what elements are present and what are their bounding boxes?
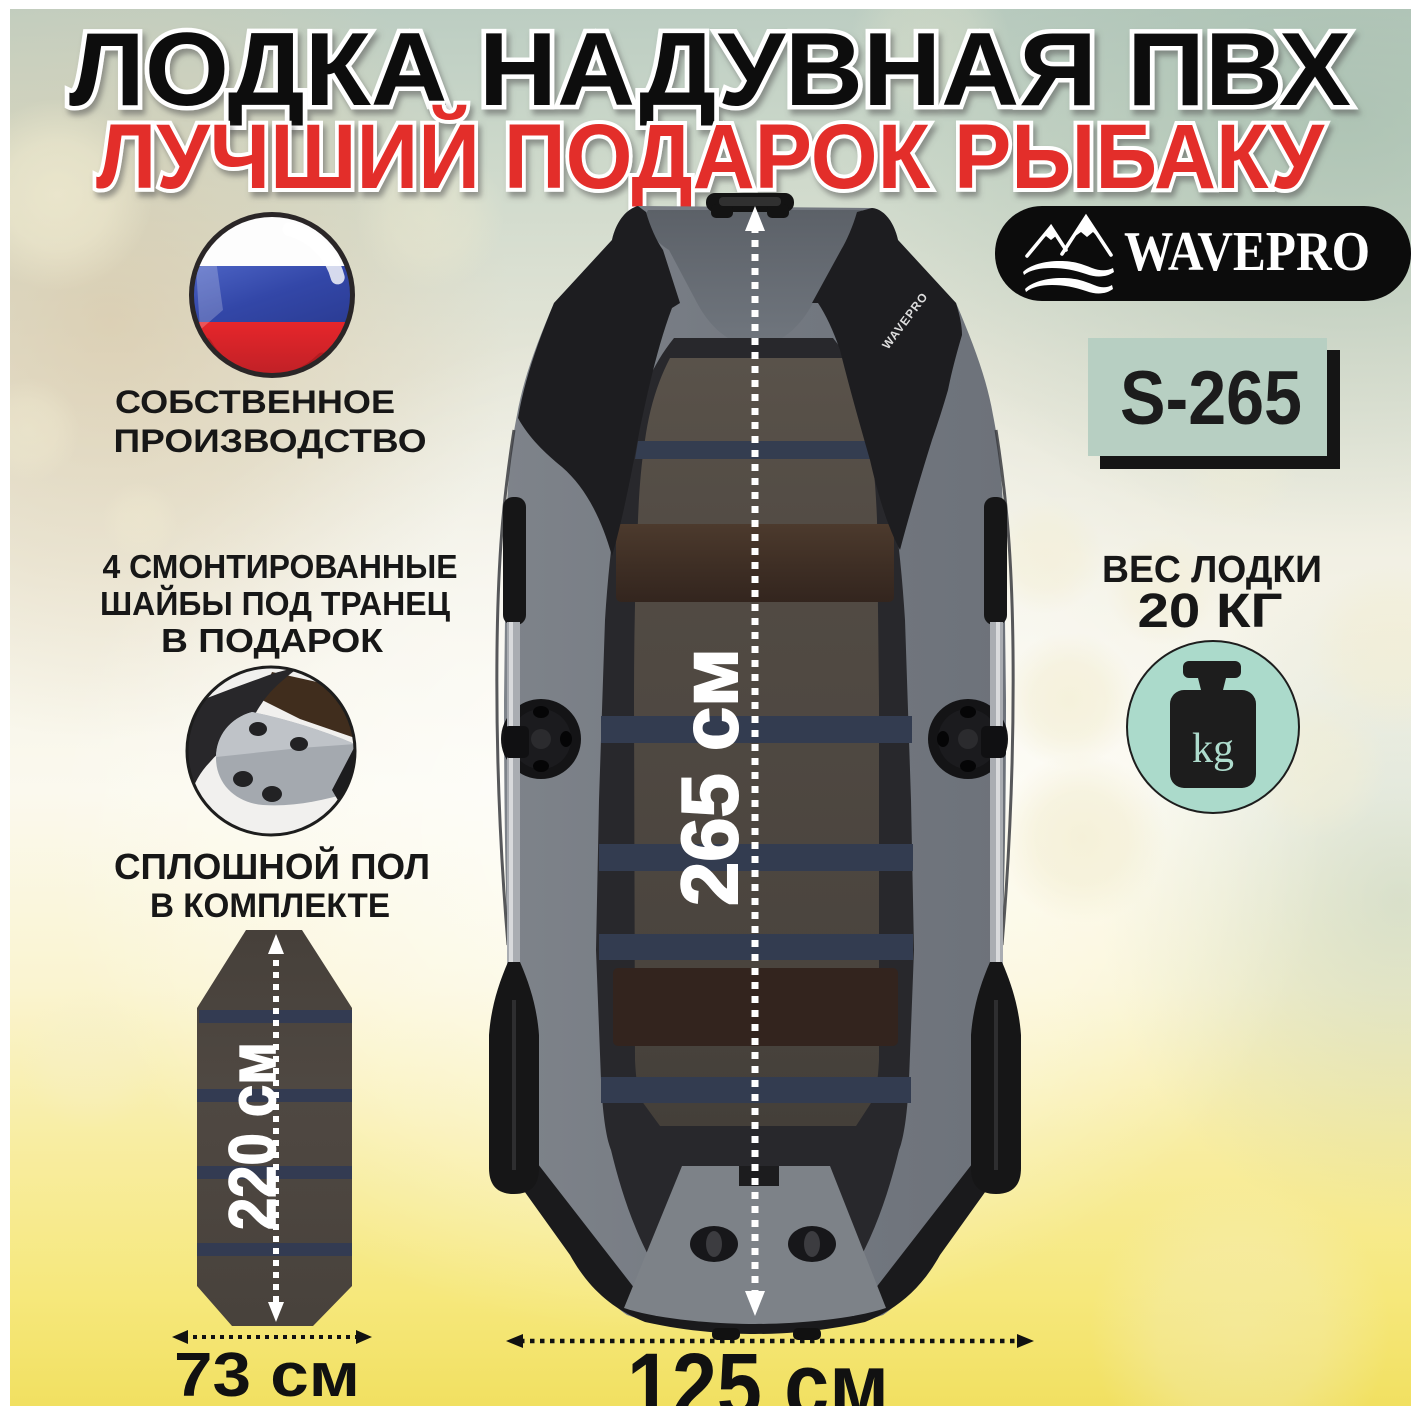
svg-text:220 см: 220 см (215, 1042, 289, 1230)
svg-text:ШАЙБЫ ПОД ТРАНЕЦ: ШАЙБЫ ПОД ТРАНЕЦ (100, 584, 450, 622)
svg-text:20 КГ: 20 КГ (1138, 585, 1283, 638)
svg-text:S-265: S-265 (1120, 356, 1302, 441)
svg-text:WAVEPRO: WAVEPRO (1124, 221, 1370, 283)
svg-text:В КОМПЛЕКТЕ: В КОМПЛЕКТЕ (150, 887, 390, 925)
svg-text:ПРОИЗВОДСТВО: ПРОИЗВОДСТВО (114, 423, 427, 459)
svg-text:В ПОДАРОК: В ПОДАРОК (161, 622, 384, 659)
svg-text:265 см: 265 см (665, 648, 754, 906)
svg-text:СОБСТВЕННОЕ: СОБСТВЕННОЕ (115, 384, 395, 420)
svg-text:73 см: 73 см (174, 1341, 360, 1410)
svg-text:СПЛОШНОЙ ПОЛ: СПЛОШНОЙ ПОЛ (114, 845, 430, 887)
svg-text:ЛУЧШИЙ ПОДАРОК РЫБАКУ: ЛУЧШИЙ ПОДАРОК РЫБАКУ (96, 104, 1326, 208)
svg-text:kg: kg (1192, 726, 1234, 772)
svg-text:4 СМОНТИРОВАННЫЕ: 4 СМОНТИРОВАННЫЕ (103, 548, 458, 585)
